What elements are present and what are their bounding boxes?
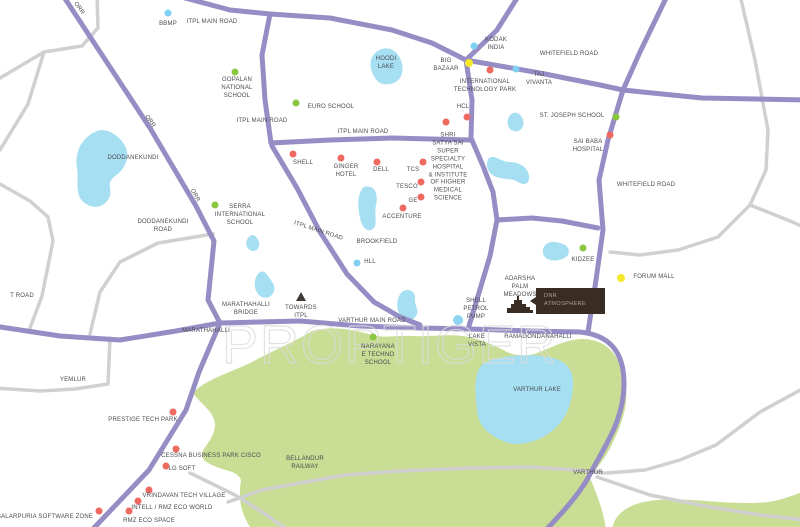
- dot-prestige-tech-park: [170, 409, 177, 416]
- dot-tesco: [418, 179, 425, 186]
- road-label-varthur-main-road: VARTHUR MAIN ROAD: [338, 318, 406, 326]
- label-sai-baba-hospital: SAI BABAHOSPITAL: [573, 139, 604, 155]
- label-lake-vista: LAKEVISTA: [468, 334, 486, 350]
- label-bellandur-railway: BELLANDURRAILWAY: [286, 456, 324, 472]
- dot-taj-vivanta: [513, 66, 520, 73]
- label-towards-itpl: TOWARDSITPL: [285, 305, 317, 321]
- dot-forum-mall: [617, 274, 625, 282]
- label-kidzee: KIDZEE: [572, 257, 595, 265]
- dot-hcl: [464, 114, 471, 121]
- dot-gopalan-national-school: [232, 69, 239, 76]
- label-st-joseph-school: ST. JOSEPH SCHOOL: [540, 113, 605, 121]
- dot-ge: [418, 194, 425, 201]
- label-hll: HLL: [364, 259, 376, 267]
- label-shell: SHELL: [293, 160, 313, 168]
- project-name-line2: ATMOSPHERE: [544, 300, 605, 308]
- label-euro-school: EURO SCHOOL: [308, 104, 355, 112]
- dot-bbmp: [165, 10, 172, 17]
- label-big-bazaar: BIGBAZAAR: [433, 58, 458, 74]
- dot-intell-rmz-eco-world: [135, 498, 142, 505]
- label-prestige-tech-park: PRESTIGE TECH PARK: [108, 417, 177, 425]
- label-vrindavan-tech-village: VRINDAVAN TECH VILLAGE: [142, 493, 225, 501]
- label-kodak-india: KODAKINDIA: [485, 37, 507, 53]
- dot-sai-baba-hospital: [607, 132, 614, 139]
- road-label-whitefield-road-1: WHITEFIELD ROAD: [540, 51, 598, 59]
- dot-international-technology-park: [487, 67, 494, 74]
- road-label-doddanekundi-road: DODDANEKUNDIROAD: [137, 219, 188, 235]
- label-varthur: VARTHUR: [573, 470, 603, 478]
- road-label-itpl-main-road-3: ITPL MAIN ROAD: [338, 129, 389, 137]
- dot-hll: [354, 260, 361, 267]
- dot-narayana-school: [370, 334, 377, 341]
- label-tcs: TCS: [407, 167, 420, 175]
- label-satya-sai-hospital: SHRISATYA SAISUPERSPECIALTYHOSPITAL& INS…: [429, 132, 468, 203]
- label-varthur-lake: VARTHUR LAKE: [513, 387, 561, 395]
- label-bbmp: BBMP: [159, 21, 177, 29]
- label-cessna-business-park: CESSNA BUSINESS PARK CISCO: [161, 453, 261, 461]
- label-narayana-school: NARAYANAE TECHNOSCHOOL: [361, 344, 395, 368]
- label-ge: GE: [408, 198, 417, 206]
- road-label-itpl-main-road-1: ITPL MAIN ROAD: [187, 19, 238, 27]
- dot-satya-sai-hospital: [443, 119, 450, 126]
- dot-shell: [290, 151, 297, 158]
- dot-dell: [374, 159, 381, 166]
- label-lg-soft: LG SOFT: [168, 466, 195, 474]
- label-serra-international-school: SERRAINTERNATIONALSCHOOL: [215, 204, 265, 228]
- labels-layer: BBMPITPL MAIN ROADORRGOPALANNATIONALSCHO…: [0, 0, 800, 527]
- road-label-itpl-main-road-2: ITPL MAIN ROAD: [237, 118, 288, 126]
- road-label-itpl-main-road-4: ITPL MAIN ROAD: [293, 220, 344, 243]
- label-brookfield: BROOKFIELD: [357, 239, 398, 247]
- label-hoodi-lake: HOODILAKE: [376, 56, 397, 72]
- road-label-t-road: T ROAD: [10, 293, 34, 301]
- label-ramagondanahalli: RAMAGONDANAHALLI: [504, 334, 572, 342]
- label-hcl: HCL: [457, 104, 470, 112]
- label-taj-vivanta: TAJVIVANTA: [526, 72, 552, 88]
- label-shell-petrol-pump: SHELLPETROLPUMP: [463, 298, 488, 322]
- label-forum-mall: FORUM MALL: [633, 274, 674, 282]
- label-ginger-hotel: GINGERHOTEL: [334, 164, 359, 180]
- label-doddanekundi-lake: DODDANEKUNDI: [107, 155, 158, 163]
- dot-ginger-hotel: [338, 155, 345, 162]
- dot-st-joseph-school: [613, 114, 620, 121]
- road-label-orr-2: ORR: [142, 114, 156, 130]
- road-label-orr-3: ORR: [187, 188, 201, 204]
- dot-euro-school: [293, 100, 300, 107]
- label-yemlur: YEMLUR: [60, 377, 86, 385]
- project-callout-dnr-atmosphere: DNR ATMOSPHERE: [536, 288, 605, 314]
- road-label-orr-1: ORR: [71, 1, 85, 17]
- label-dell: DELL: [373, 167, 389, 175]
- dot-salarpuria-software-zone: [96, 508, 103, 515]
- dot-shell-petrol-pump: [453, 315, 463, 325]
- label-marathahalli: MARATHAHALLI: [182, 328, 230, 336]
- dot-cessna-business-park: [173, 446, 180, 453]
- label-rmz-eco-space: RMZ ECO SPACE: [123, 518, 175, 526]
- label-accenture: ACCENTURE: [382, 214, 421, 222]
- label-international-technology-park: INTERNATIONALTECHNOLOGY PARK: [454, 79, 516, 95]
- label-salarpuria-software-zone: SALARPURIA SOFTWARE ZONE: [0, 514, 93, 522]
- dot-kodak-india: [471, 43, 478, 50]
- dot-accenture: [400, 205, 407, 212]
- label-tesco: TESCO: [396, 184, 418, 192]
- dot-kidzee: [580, 245, 587, 252]
- label-intell-rmz-eco-world: INTELL / RMZ ECO WORLD: [131, 505, 212, 513]
- dot-tcs: [420, 159, 427, 166]
- label-gopalan-national-school: GOPALANNATIONALSCHOOL: [221, 77, 252, 101]
- road-label-whitefield-road-2: WHITEFIELD ROAD: [617, 182, 675, 190]
- label-marathahalli-bridge: MARATHAHALLIBRIDGE: [222, 302, 270, 318]
- location-map: PROPTIGER BBMPITPL MAIN ROADORRGOPALANNA…: [0, 0, 800, 527]
- dot-big-bazaar: [465, 59, 473, 67]
- project-name-line1: DNR: [544, 292, 605, 300]
